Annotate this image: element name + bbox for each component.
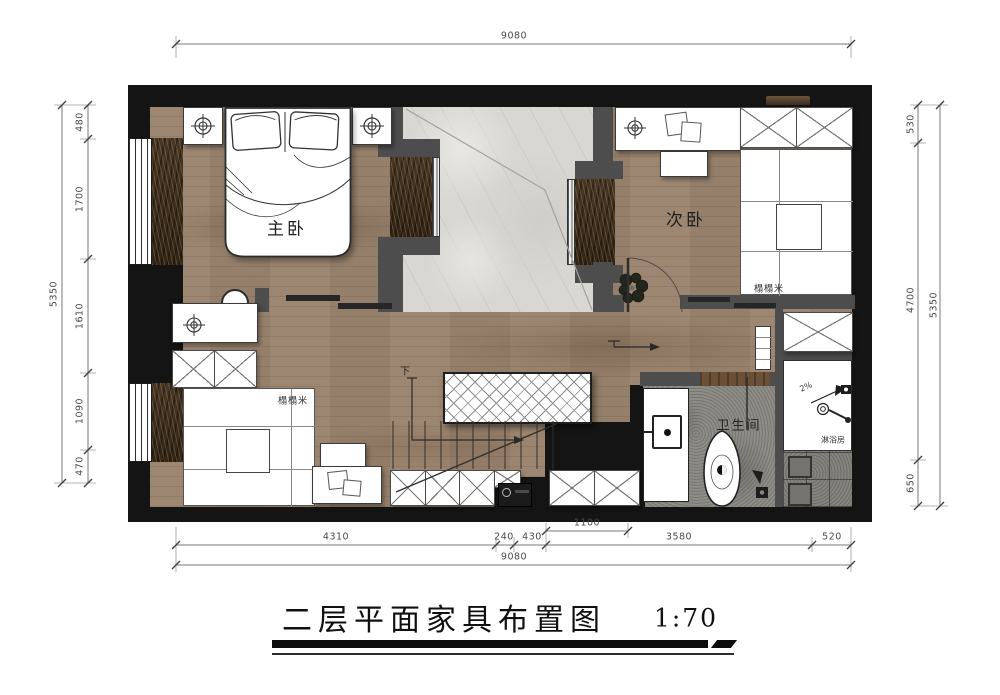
wardrobe xyxy=(152,383,183,462)
wall-segment xyxy=(783,352,852,360)
low-table xyxy=(776,204,822,250)
room-label-shower: 淋浴房 xyxy=(821,435,845,446)
wall-segment xyxy=(378,237,403,312)
stair-void-railing xyxy=(443,372,592,424)
window xyxy=(128,138,152,265)
title-underline-end xyxy=(711,640,737,648)
dim-bottom-seg: 3580 xyxy=(666,532,692,543)
plant xyxy=(616,272,648,304)
room-label-master-bedroom: 主卧 xyxy=(267,215,307,240)
dim-bottom-seg: 240 xyxy=(494,532,514,543)
shower-tile-dark xyxy=(788,483,812,506)
wardrobe-door-track xyxy=(567,179,575,265)
cabinet-cell xyxy=(214,350,257,388)
lamp-icon xyxy=(624,117,646,139)
appliance xyxy=(498,483,532,507)
desk-shelf xyxy=(660,151,708,177)
lamp-icon xyxy=(359,113,385,139)
wardrobe-x xyxy=(740,107,852,148)
study-shelf xyxy=(320,443,366,467)
dim-left-seg: 470 xyxy=(75,456,86,476)
cabinet-cell xyxy=(425,470,461,506)
cabinet-x xyxy=(783,312,852,352)
cabinet-x xyxy=(549,470,639,506)
dim-bottom-inner: 1100 xyxy=(574,518,600,529)
dim-bottom-seg: 520 xyxy=(822,532,842,543)
appliance-knob xyxy=(502,488,511,497)
tatami-platform-bedroom xyxy=(740,149,852,295)
cabinet-cell xyxy=(740,107,797,148)
wall-segment xyxy=(775,309,783,507)
dim-bottom-seg: 430 xyxy=(522,532,542,543)
dim-right-seg: 530 xyxy=(906,114,917,134)
cabinet-cell xyxy=(549,470,595,506)
chair xyxy=(680,121,701,142)
cabinet-cell xyxy=(783,312,853,352)
shower-tile-dark xyxy=(788,456,812,478)
wall-segment xyxy=(390,139,440,157)
chair xyxy=(342,479,361,497)
washing-machine xyxy=(643,388,689,502)
room-label-tatami-study: 榻榻米 xyxy=(278,394,308,407)
wardrobe-door-track xyxy=(432,157,440,237)
corridor-step xyxy=(755,326,771,370)
sliding-door xyxy=(338,303,392,309)
cabinet-cell xyxy=(459,470,495,506)
stairs-down-label: 下 xyxy=(400,363,410,378)
cabinet-x xyxy=(390,470,494,506)
study-desk xyxy=(312,466,382,504)
drawing-scale: 1:70 xyxy=(654,604,718,633)
landing-wardrobe xyxy=(390,157,432,237)
lamp-icon xyxy=(183,314,205,336)
dim-left-seg: 1090 xyxy=(75,398,86,424)
room-label-bathroom: 卫生间 xyxy=(716,415,761,434)
vanity-desk xyxy=(172,303,258,343)
bathroom-threshold xyxy=(700,372,770,386)
wall-segment xyxy=(575,161,623,179)
dim-left-seg: 1700 xyxy=(75,186,86,212)
nightstand-right xyxy=(352,107,392,145)
wall-shelf xyxy=(766,96,810,105)
cabinet-cell xyxy=(594,470,640,506)
room-label-tatami-bedroom: 榻榻米 xyxy=(754,282,784,295)
dim-right-total: 5350 xyxy=(929,292,940,318)
dim-top-total: 9080 xyxy=(501,31,527,42)
sliding-door xyxy=(286,295,340,301)
dim-left-seg: 1610 xyxy=(75,303,86,329)
lamp-icon xyxy=(190,113,216,139)
wardrobe xyxy=(152,138,183,265)
nightstand-left xyxy=(183,107,223,145)
dim-bottom-total: 9080 xyxy=(501,552,527,563)
washer-dot xyxy=(664,429,671,436)
dim-bottom-seg: 4310 xyxy=(323,532,349,543)
dim-right-seg: 4700 xyxy=(906,287,917,313)
cabinet-x xyxy=(172,350,256,388)
window xyxy=(128,383,152,462)
title-underline-thin xyxy=(272,653,734,655)
toilet xyxy=(698,428,746,508)
wall-segment xyxy=(640,372,700,386)
cabinet-cell xyxy=(172,350,215,388)
floor-plan: 主卧 次卧 卫生间 淋浴房 榻榻米 榻榻米 下 2% 9080 4310 240… xyxy=(0,0,1000,695)
room-label-second-bedroom: 次卧 xyxy=(666,206,706,231)
cabinet-cell xyxy=(390,470,426,506)
low-table xyxy=(226,429,270,473)
landing-wardrobe xyxy=(575,179,615,265)
dim-left-total: 5350 xyxy=(49,281,60,307)
dim-left-seg: 480 xyxy=(75,112,86,132)
sliding-door xyxy=(734,303,776,308)
cabinet-cell xyxy=(796,107,853,148)
dim-right-seg: 650 xyxy=(906,473,917,493)
title-underline-thick xyxy=(272,640,708,648)
drawing-title: 二层平面家具布置图 xyxy=(282,595,606,639)
sliding-door xyxy=(688,297,730,302)
